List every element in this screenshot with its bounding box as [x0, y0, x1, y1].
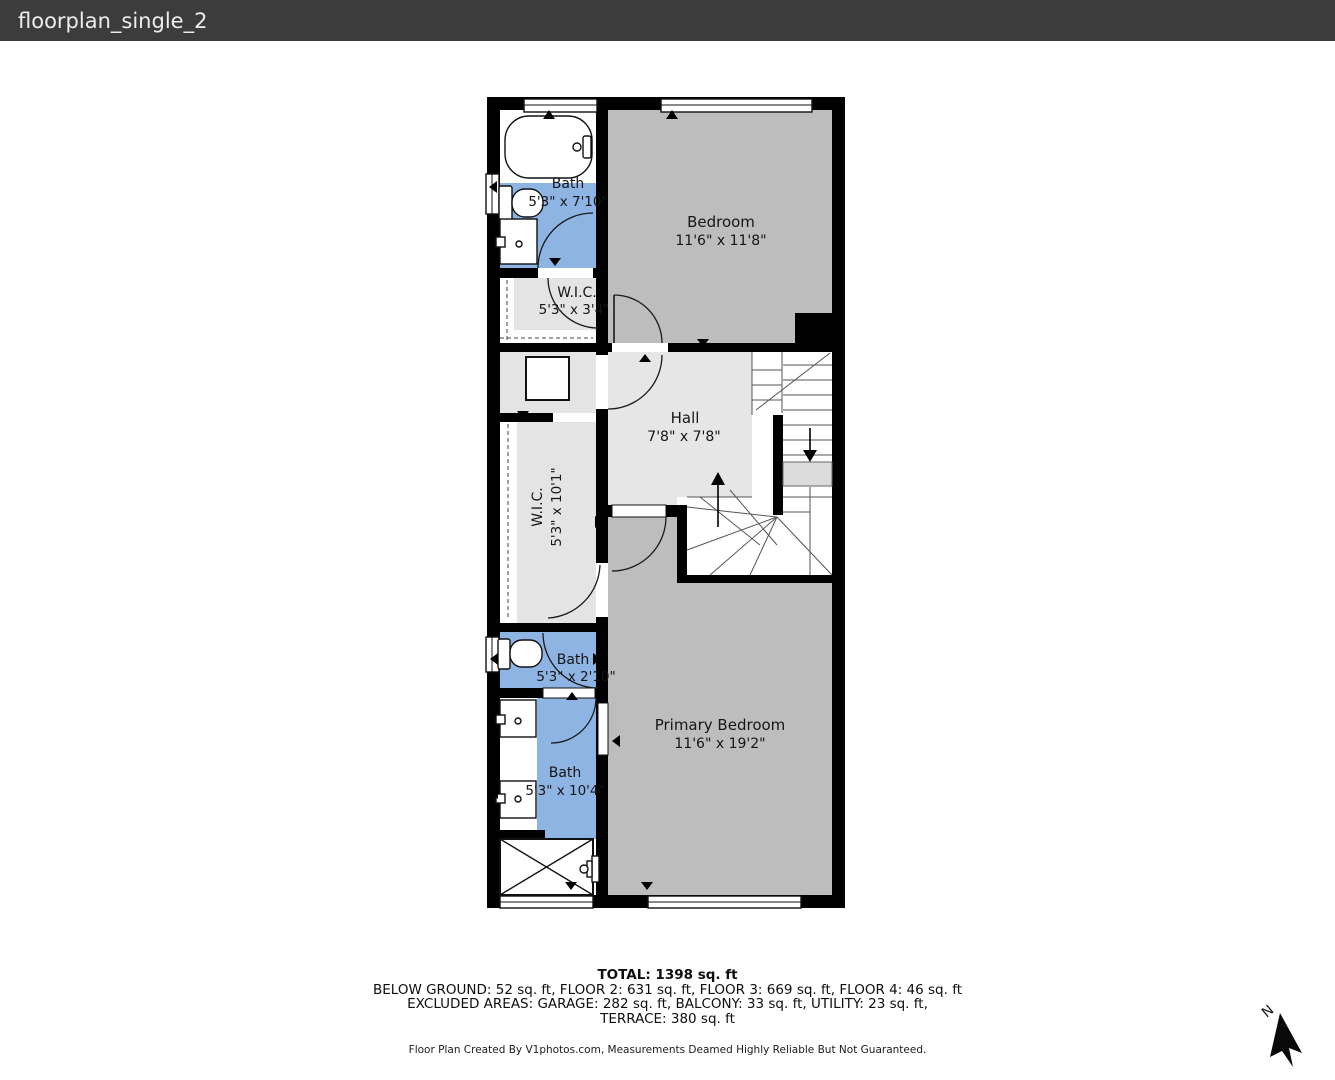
window-top-bedroom — [661, 99, 812, 112]
title-bar: floorplan_single_2 — [0, 0, 1335, 41]
sink-vanity-1 — [496, 700, 536, 737]
stair-landing — [783, 462, 832, 486]
floorplan-canvas: Bath 5'3" x 7'10" Bedroom 11'6" x 11'8" … — [480, 90, 855, 920]
summary-total: TOTAL: 1398 sq. ft — [0, 968, 1335, 983]
summary-excluded: EXCLUDED AREAS: GARAGE: 282 sq. ft, BALC… — [0, 997, 1335, 1012]
bedroom-corner-notch — [795, 313, 845, 352]
window-top-bath — [524, 99, 597, 112]
room-dims: 5'3" x 3'4" — [539, 302, 610, 318]
shaft-square — [526, 357, 569, 400]
sink-top — [496, 219, 537, 264]
room-label: W.I.C. — [557, 285, 597, 301]
summary-floors: BELOW GROUND: 52 sq. ft, FLOOR 2: 631 sq… — [0, 983, 1335, 998]
room-dims: 7'8" x 7'8" — [647, 429, 720, 445]
room-label: Bath — [549, 765, 582, 781]
room-label: Bath — [552, 176, 585, 192]
window-left-bath-top — [486, 174, 499, 214]
credit-line: Floor Plan Created By V1photos.com, Meas… — [0, 1044, 1335, 1056]
area-summary: TOTAL: 1398 sq. ft BELOW GROUND: 52 sq. … — [0, 968, 1335, 1026]
toilet-middle — [498, 639, 542, 669]
page-title: floorplan_single_2 — [18, 9, 207, 33]
bathtub — [505, 116, 592, 178]
summary-excluded-2: TERRACE: 380 sq. ft — [0, 1012, 1335, 1027]
room-label: Bedroom — [687, 213, 755, 231]
room-label: Hall — [671, 409, 700, 427]
room-dims: 5'3" x 10'1" — [549, 467, 565, 546]
room-dims: 5'3" x 7'10" — [528, 194, 607, 210]
stair-mid-wall — [773, 415, 783, 515]
room-dims: 11'6" x 11'8" — [675, 233, 766, 249]
room-dims: 5'3" x 2'10" — [536, 669, 615, 685]
room-label: W.I.C. — [530, 487, 546, 527]
room-bath-primary-floor — [537, 698, 596, 830]
room-dims: 5'3" x 10'4" — [525, 783, 604, 799]
room-label: Primary Bedroom — [655, 716, 786, 734]
room-label: Bath — [557, 652, 590, 668]
window-bottom-shower — [500, 896, 593, 908]
window-bottom-primary — [648, 896, 801, 908]
shower — [500, 839, 599, 895]
room-dims: 11'6" x 19'2" — [674, 736, 765, 752]
